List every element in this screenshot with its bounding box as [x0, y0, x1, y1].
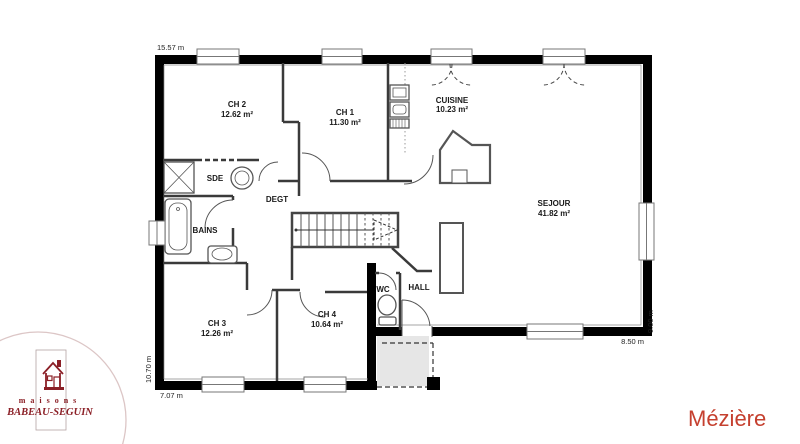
brand-name: BABEAU-SEGUIN	[6, 407, 93, 418]
window-sejour-bottom	[527, 324, 583, 339]
entry-porch	[377, 336, 440, 390]
window-cuisine-frenchdoor	[431, 49, 472, 64]
model-title: Mézière	[688, 406, 798, 432]
dim-bottom-right: 8.50 m	[621, 337, 644, 346]
window-bains	[149, 221, 165, 245]
kitchen-counter	[440, 131, 490, 183]
room-label-hall: HALL	[408, 283, 429, 292]
room-label-cuisine: CUISINE	[436, 96, 469, 105]
door-arc-bains	[205, 200, 233, 228]
room-area-ch2: 12.62 m²	[221, 110, 253, 119]
room-label-ch3: CH 3	[208, 319, 227, 328]
window-sejour-right	[639, 203, 654, 260]
bains-sink-fixture	[208, 246, 237, 263]
room-label-sejour: SEJOUR	[538, 199, 571, 208]
dim-bottom-left: 7.07 m	[160, 391, 183, 400]
fixtures	[164, 85, 490, 325]
sde-sink-fixture	[231, 167, 253, 189]
wall-step	[367, 263, 376, 390]
room-label-degt: DEGT	[266, 195, 288, 204]
window-ch3	[202, 377, 244, 392]
dim-left: 10.70 m	[144, 356, 153, 383]
room-label-sde: SDE	[207, 174, 224, 183]
bathtub-fixture	[165, 199, 191, 254]
shower-fixture	[164, 162, 194, 193]
room-label-bains: BAINS	[193, 226, 219, 235]
window-ch4	[304, 377, 346, 392]
french-door-swings	[431, 64, 585, 85]
toilet-fixture	[378, 295, 396, 325]
porch-post	[427, 377, 440, 390]
wall-hall-diagonal	[392, 248, 432, 271]
stairs	[292, 213, 398, 247]
room-area-cuisine: 10.23 m²	[436, 105, 468, 114]
room-area-sejour: 41.82 m²	[538, 209, 570, 218]
wall-right	[643, 55, 652, 336]
window-ch1	[322, 49, 362, 64]
door-arc-degt	[259, 162, 278, 181]
sejour-cupboard	[440, 223, 463, 293]
floor-plan-page: maisons BABEAU-SEGUIN	[0, 0, 800, 444]
door-arc-entrance	[402, 300, 430, 328]
room-area-ch3: 12.26 m²	[201, 329, 233, 338]
dim-right: 9.00 m	[646, 310, 655, 333]
window-ch2	[197, 49, 239, 64]
entrance-doorway	[402, 326, 432, 337]
kitchen-appliances	[390, 85, 409, 128]
room-label-wc: WC	[376, 285, 390, 294]
window-sejour-frenchdoor	[543, 49, 585, 64]
door-arc-cuisine	[404, 155, 433, 184]
brand-word: maisons	[19, 396, 82, 405]
floor-plan-drawing: maisons BABEAU-SEGUIN	[0, 0, 800, 444]
room-label-ch2: CH 2	[228, 100, 247, 109]
room-label-ch1: CH 1	[336, 108, 355, 117]
room-area-ch1: 11.30 m²	[329, 118, 361, 127]
room-area-ch4: 10.64 m²	[311, 320, 343, 329]
room-label-ch4: CH 4	[318, 310, 337, 319]
dim-top: 15.57 m	[157, 43, 184, 52]
door-arc-ch1	[302, 153, 330, 181]
brand-logo: maisons BABEAU-SEGUIN	[0, 332, 126, 444]
door-arc-ch3	[247, 290, 272, 315]
